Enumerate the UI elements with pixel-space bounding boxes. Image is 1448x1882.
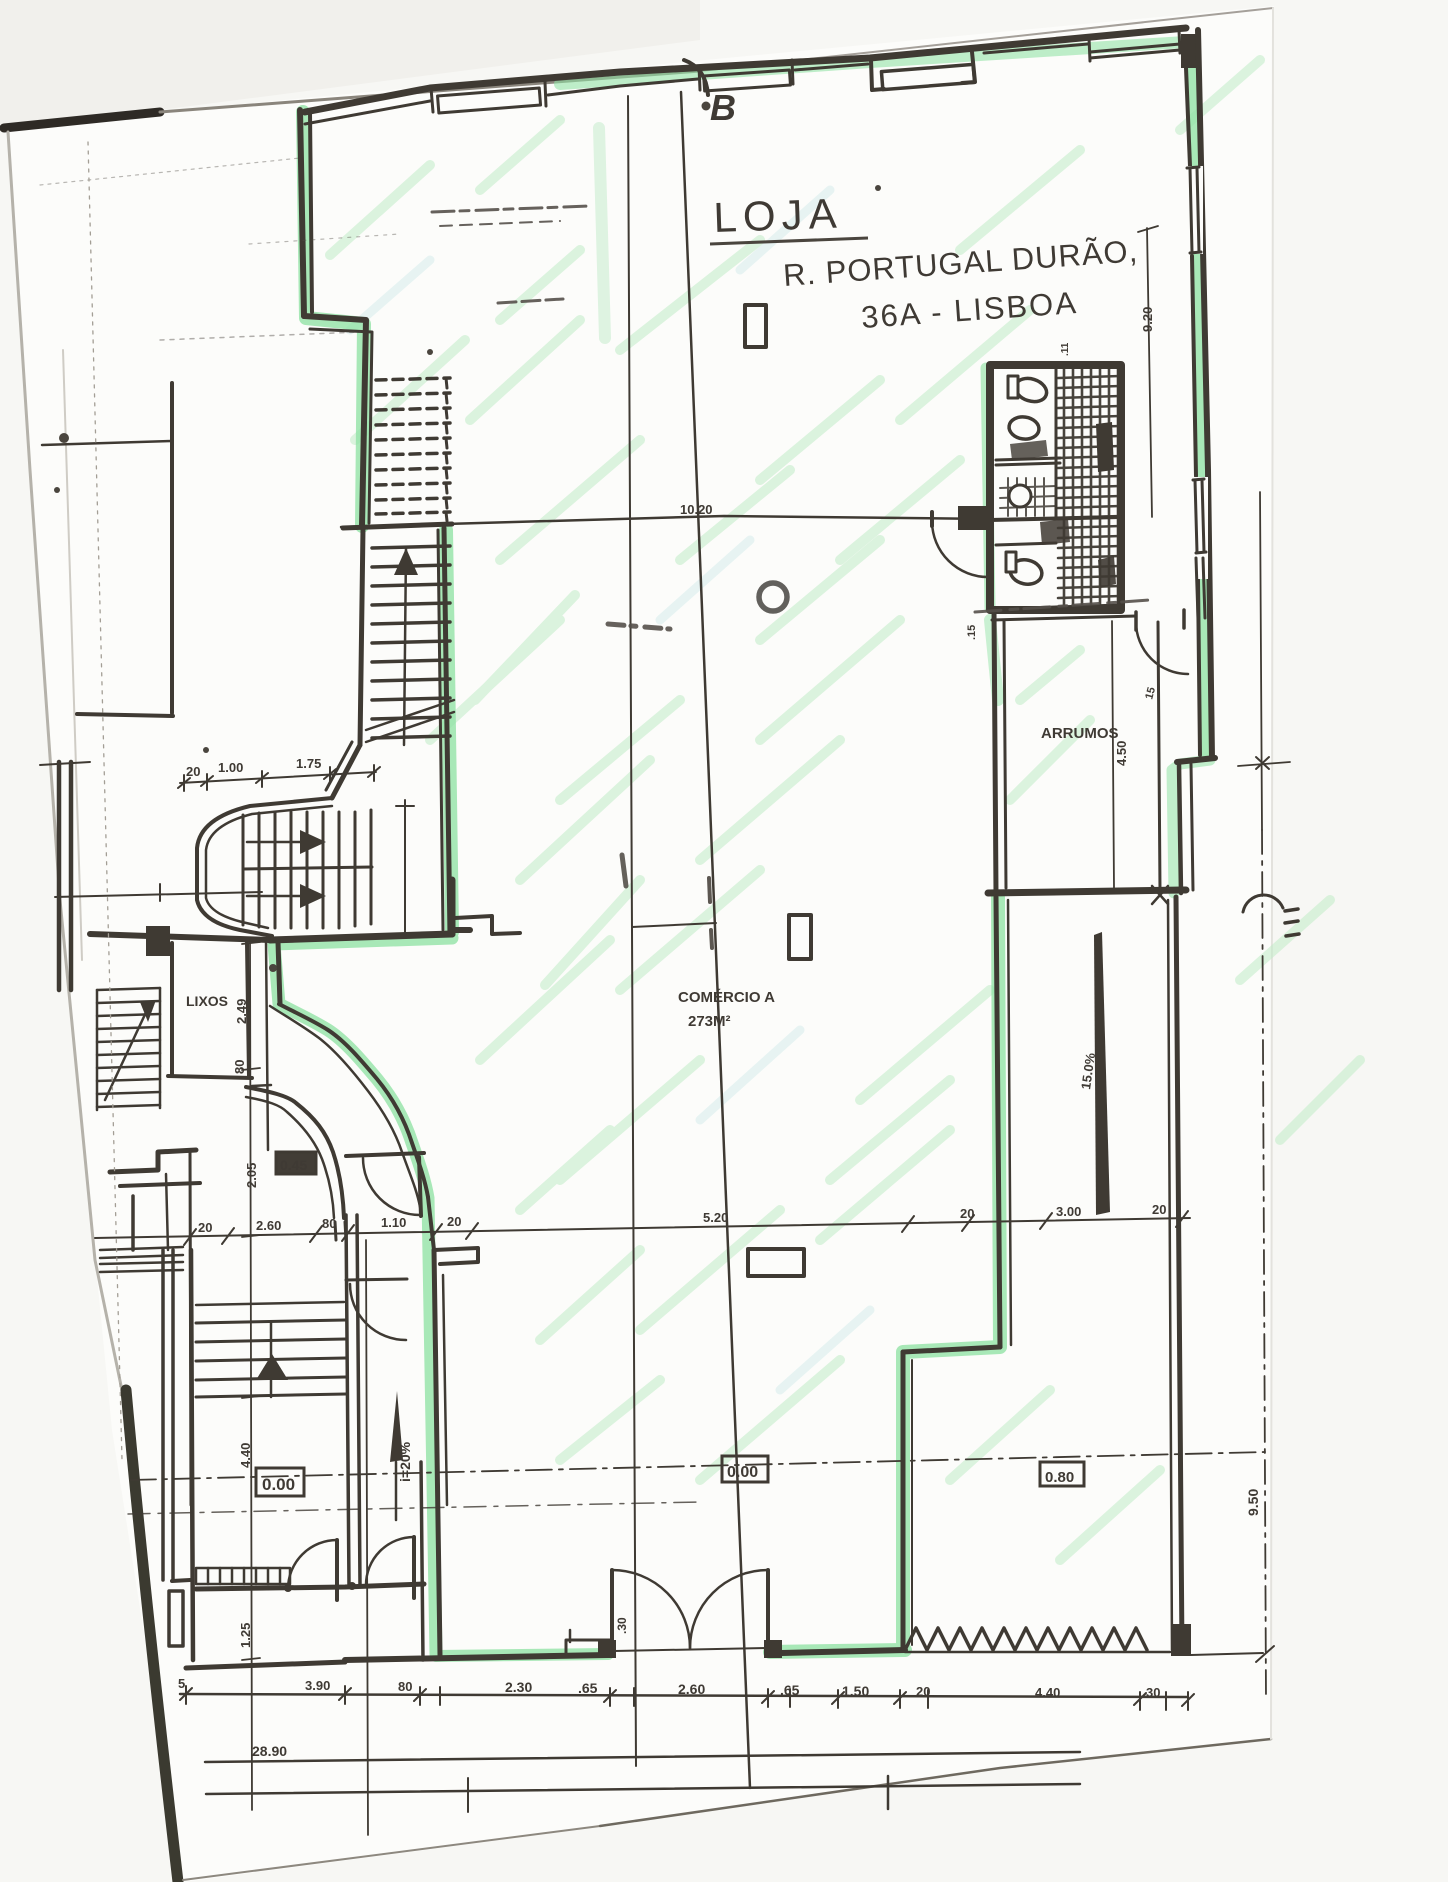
svg-text:.65: .65 [578, 1680, 598, 1696]
svg-text:4.40: 4.40 [1035, 1685, 1060, 1700]
svg-text:30: 30 [1146, 1685, 1160, 1700]
svg-text:.11: .11 [1060, 342, 1071, 356]
svg-text:.30: .30 [615, 1617, 629, 1634]
svg-text:5.20: 5.20 [703, 1210, 728, 1225]
svg-text:80: 80 [398, 1679, 412, 1694]
svg-text:20: 20 [960, 1206, 974, 1221]
svg-text:20: 20 [916, 1684, 930, 1699]
svg-text:80: 80 [232, 1060, 247, 1074]
svg-text:4.40: 4.40 [238, 1443, 253, 1468]
svg-text:273M²: 273M² [688, 1013, 731, 1030]
svg-text:LIXOS: LIXOS [186, 993, 228, 1009]
svg-text:0.00: 0.00 [262, 1475, 295, 1494]
svg-text:1.25: 1.25 [238, 1623, 253, 1648]
svg-text:2.60: 2.60 [256, 1218, 281, 1233]
svg-text:0.80: 0.80 [1045, 1469, 1074, 1486]
svg-text:B: B [710, 87, 736, 128]
svg-text:5: 5 [178, 1676, 185, 1691]
svg-text:0.00: 0.00 [727, 1464, 758, 1481]
svg-text:20: 20 [198, 1220, 212, 1235]
svg-text:ARRUMOS: ARRUMOS [1041, 725, 1119, 742]
svg-text:.15: .15 [966, 625, 978, 640]
svg-text:2.05: 2.05 [244, 1163, 259, 1188]
svg-text:80: 80 [322, 1216, 336, 1231]
svg-text:2.49: 2.49 [234, 999, 249, 1024]
svg-text:20: 20 [447, 1214, 461, 1229]
svg-text:i=20%: i=20% [397, 1441, 413, 1482]
svg-text:28.90: 28.90 [252, 1743, 287, 1759]
svg-text:2.30: 2.30 [505, 1679, 532, 1695]
svg-text:.65: .65 [780, 1682, 800, 1698]
svg-text:COMÉRCIO A: COMÉRCIO A [678, 989, 775, 1006]
svg-text:10.20: 10.20 [680, 502, 713, 517]
svg-text:1.50: 1.50 [842, 1683, 869, 1699]
svg-text:0.45: 0.45 [280, 1157, 307, 1173]
svg-text:3.90: 3.90 [305, 1678, 330, 1693]
svg-text:1.75: 1.75 [296, 756, 321, 771]
svg-text:1.00: 1.00 [218, 760, 243, 775]
svg-text:LOJA: LOJA [713, 190, 844, 241]
svg-text:9.20: 9.20 [1140, 307, 1155, 332]
svg-text:2.60: 2.60 [678, 1681, 705, 1697]
svg-text:4.50: 4.50 [1114, 741, 1129, 766]
svg-text:20: 20 [1152, 1202, 1166, 1217]
svg-text:9.50: 9.50 [1245, 1489, 1261, 1516]
svg-text:20: 20 [186, 764, 200, 779]
svg-text:1.10: 1.10 [381, 1215, 406, 1230]
svg-text:3.00: 3.00 [1056, 1204, 1081, 1219]
